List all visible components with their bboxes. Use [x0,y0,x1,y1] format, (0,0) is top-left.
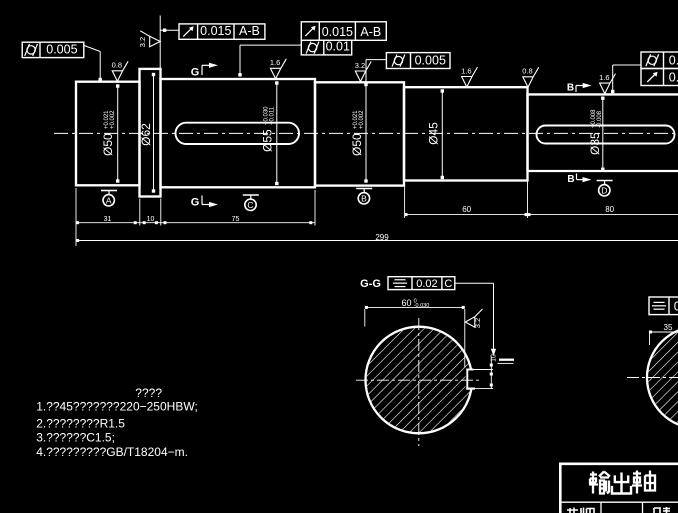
svg-text:0.01: 0.01 [326,40,350,54]
svg-text:10: 10 [491,354,498,362]
svg-text:60: 60 [462,205,471,214]
svg-text:1.6: 1.6 [461,66,471,75]
svg-text:3.??????C1.5;: 3.??????C1.5; [36,431,115,445]
svg-text:Ø45: Ø45 [426,122,440,145]
svg-text:80: 80 [605,205,614,214]
svg-text:G-G: G-G [360,278,381,290]
svg-text:299: 299 [375,233,389,242]
svg-text:A-B: A-B [360,25,381,39]
svg-text:D: D [601,186,607,196]
svg-text:3.2: 3.2 [473,318,482,328]
svg-text:G: G [191,67,200,79]
svg-text:+0.002: +0.002 [110,110,116,129]
svg-text:0.015: 0.015 [200,24,231,38]
svg-text:0.8: 0.8 [522,67,532,76]
svg-text:1.6: 1.6 [270,58,280,67]
svg-text:35: 35 [664,323,673,332]
svg-text:0.005: 0.005 [46,42,77,56]
svg-text:B: B [567,174,574,185]
svg-text:3.2: 3.2 [138,37,147,47]
svg-text:2.????????R1.5: 2.????????R1.5 [36,417,125,431]
svg-text:31: 31 [104,216,112,223]
svg-text:-0.008: -0.008 [597,110,603,128]
svg-text:0.02: 0.02 [416,278,437,290]
svg-text:C: C [444,278,452,290]
svg-text:Ø50: Ø50 [350,133,364,156]
svg-text:1.??45???????220−250HBW;: 1.??45???????220−250HBW; [36,400,198,414]
svg-text:60: 60 [402,298,412,308]
svg-text:0.005: 0.005 [415,53,446,67]
svg-text:Ø35: Ø35 [588,132,602,155]
svg-text:A-B: A-B [239,24,260,38]
svg-text:0.0: 0.0 [669,70,678,84]
svg-text:+0.002: +0.002 [359,110,365,129]
svg-text:0.8: 0.8 [112,61,122,70]
svg-text:0.: 0. [674,299,678,313]
svg-text:0.015: 0.015 [322,25,353,39]
svg-text:75: 75 [232,216,240,223]
svg-text:3.2: 3.2 [355,61,365,70]
svg-text:Ø62: Ø62 [139,123,153,146]
svg-text:B: B [361,194,367,204]
svg-text:0.0: 0.0 [669,53,678,67]
svg-text:Ø55: Ø55 [260,129,274,152]
svg-text:C: C [247,200,253,210]
svg-text:4.?????????GB/T18204−m.: 4.?????????GB/T18204−m. [36,445,188,459]
svg-text:A: A [106,196,112,206]
svg-text:10: 10 [147,216,155,223]
svg-text:G: G [191,197,200,209]
svg-text:B: B [567,83,574,94]
svg-text:????: ???? [135,386,162,400]
svg-text:Ø50: Ø50 [101,133,115,156]
svg-text:-0.030: -0.030 [414,303,430,309]
svg-text:1.6: 1.6 [599,73,609,82]
svg-text:+0.011: +0.011 [269,106,275,125]
